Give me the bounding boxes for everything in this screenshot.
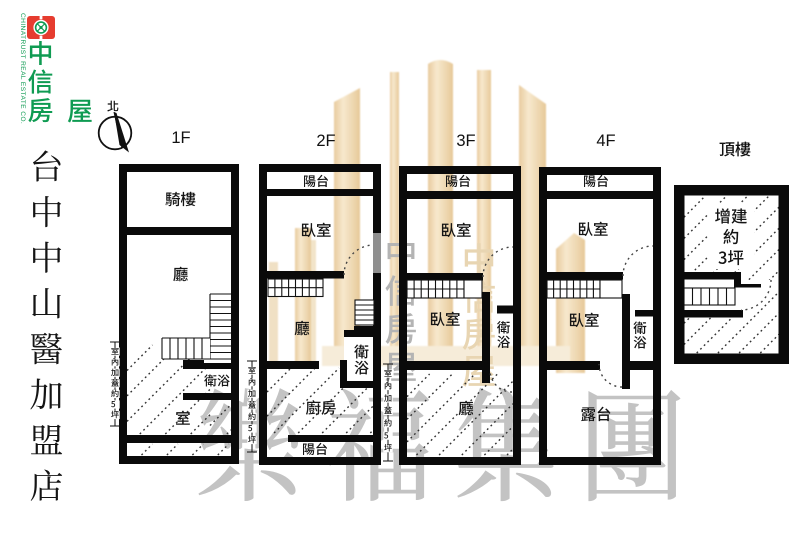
svg-text:1F: 1F xyxy=(171,129,190,147)
svg-text:3F: 3F xyxy=(456,132,475,150)
svg-text:4F: 4F xyxy=(596,132,615,150)
svg-text:CHINATRUST REAL ESTATE CO.: CHINATRUST REAL ESTATE CO. xyxy=(19,13,26,124)
svg-text:2F: 2F xyxy=(316,132,335,150)
